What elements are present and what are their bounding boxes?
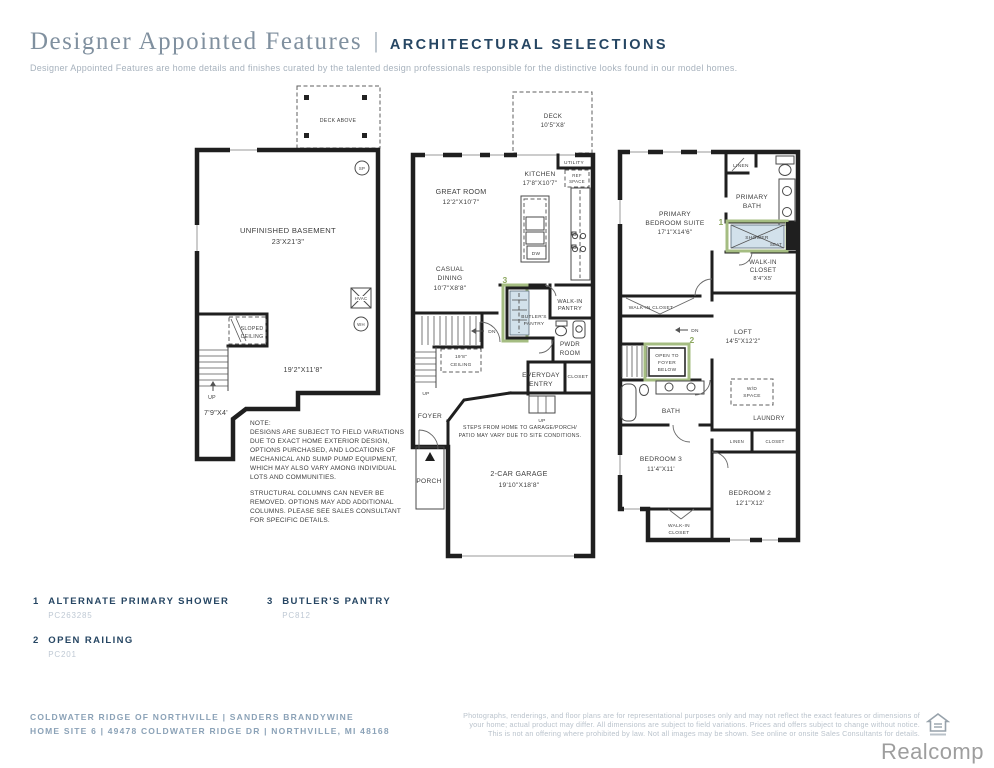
primary-bath-label-2: BATH xyxy=(743,203,761,210)
steps-note-1: STEPS FROM HOME TO GARAGE/PORCH/ xyxy=(463,425,577,431)
basement-room-label: UNFINISHED BASEMENT xyxy=(240,226,336,235)
loft-dim: 14'5"X12'2" xyxy=(726,338,761,345)
note-line: WHICH MAY ALSO VARY AMONG INDIVIDUAL xyxy=(250,465,397,472)
second-floor-plan: LINEN PRIMARY BATH PRIMARY BEDROOM SUITE… xyxy=(616,148,798,543)
entry-closet-label: CLOSET xyxy=(568,374,589,380)
bedroom2-dim: 12'1"X12' xyxy=(736,500,765,507)
legend-code: PC263285 xyxy=(48,611,229,620)
legend-label: ALTERNATE PRIMARY SHOWER xyxy=(48,596,229,607)
casual-dining-dim: 10'7"X8'8" xyxy=(434,285,467,292)
basement-plan: DECK ABOVE UP SLOPED xyxy=(193,86,405,524)
legend-num: 2 xyxy=(33,635,39,659)
deck-dim: 10'5"X8' xyxy=(541,122,566,129)
legend-num: 1 xyxy=(33,596,39,620)
deck-outline: DECK 10'5"X8' xyxy=(513,92,592,153)
loft-label: LOFT xyxy=(734,329,752,336)
note-line: DUE TO EXACT HOME EXTERIOR DESIGN, xyxy=(250,438,389,445)
great-room-label: GREAT ROOM xyxy=(436,188,487,196)
steps-note-2: PATIO MAY VARY DUE TO SITE CONDITIONS. xyxy=(459,433,582,439)
ref-label-1: REF xyxy=(572,173,582,178)
small-wic-label: WALK-IN CLOSET xyxy=(629,305,674,311)
walkin-pantry-label-2: PANTRY xyxy=(558,306,582,312)
open-to-foyer-highlight: OPEN TO FOYER BELOW xyxy=(645,344,689,380)
flyer-page: Designer Appointed Features | ARCHITECTU… xyxy=(0,0,994,768)
legend-item-2: 2 OPEN RAILING PC201 xyxy=(33,635,134,659)
bedroom2-label: BEDROOM 2 xyxy=(729,490,771,497)
linen2-label: LINEN xyxy=(730,439,744,444)
note-line: LOTS AND COMMUNITIES. xyxy=(250,474,336,481)
porch-label: PORCH xyxy=(416,478,441,485)
kitchen-label: KITCHEN xyxy=(524,171,555,178)
legend-label: OPEN RAILING xyxy=(48,635,133,646)
bedroom3-dim: 11'4"X11' xyxy=(647,466,675,473)
up-stairs-label: UP xyxy=(422,391,429,397)
open-foyer-label-2: FOYER xyxy=(658,360,676,366)
foyer-label: FOYER xyxy=(418,413,442,420)
porch: PORCH xyxy=(416,447,444,509)
primary-wic-dim: 8'4"X5' xyxy=(753,276,772,282)
legend-label: BUTLER'S PANTRY xyxy=(282,596,391,607)
realcomp-watermark: Realcomp xyxy=(881,739,984,765)
footer-line-1: COLDWATER RIDGE OF NORTHVILLE | SANDERS … xyxy=(30,711,390,725)
basement-dim2: 19'2"X11'8" xyxy=(284,366,323,374)
note-line: OPTIONS PURCHASED, AND LOCATIONS OF xyxy=(250,447,396,454)
powder-room-label-2: ROOM xyxy=(560,350,580,357)
wd-label-2: SPACE xyxy=(743,393,760,399)
note-line: NOTE: xyxy=(250,420,271,427)
wd-label-1: W/D xyxy=(747,386,757,392)
butlers-pantry-label-2: PANTRY xyxy=(524,321,545,327)
floor-plans-graphic: DECK ABOVE UP SLOPED xyxy=(0,0,994,768)
legend-code: PC812 xyxy=(282,611,391,620)
hvac-label: HVAC xyxy=(355,296,368,301)
garage-label: 2-CAR GARAGE xyxy=(490,470,547,478)
everyday-entry-label-1: EVERYDAY xyxy=(522,372,560,379)
footer-line-2: HOME SITE 6 | 49478 COLDWATER RIDGE DR |… xyxy=(30,725,390,739)
deck-label: DECK xyxy=(544,113,563,120)
butlers-pantry-label-1: BUTLER'S xyxy=(521,314,546,320)
legend-code: PC201 xyxy=(48,650,133,659)
legend-item-3: 3 BUTLER'S PANTRY PC812 xyxy=(267,596,391,620)
sp-label: SP xyxy=(359,166,365,171)
walkin-pantry-label-1: WALK-IN xyxy=(557,299,582,305)
bath-label: BATH xyxy=(662,408,680,415)
primary-wic-label-1: WALK-IN xyxy=(749,259,777,266)
primary-bath-label-1: PRIMARY xyxy=(736,194,768,201)
shower-label: SHOWER xyxy=(745,235,769,241)
suite-dim: 17'1"X14'6" xyxy=(658,229,693,236)
dishwasher-label: DW xyxy=(532,251,541,257)
dn-label: DN xyxy=(488,329,496,335)
footer-disclaimer: Photographs, renderings, and floor plans… xyxy=(450,711,920,739)
note-line: COLUMNS. PLEASE SEE SALES CONSULTANT xyxy=(250,508,401,515)
wh-label: WH xyxy=(357,322,365,327)
note-line: STRUCTURAL COLUMNS CAN NEVER BE xyxy=(250,490,385,497)
note-line: MECHANICAL AND SUMP PUMP EQUIPMENT, xyxy=(250,456,397,463)
deck-above-label: DECK ABOVE xyxy=(320,118,357,124)
basement-dim3: 7'9"X4' xyxy=(204,409,228,417)
everyday-entry-label-2: ENTRY xyxy=(529,381,553,388)
casual-dining-label-1: CASUAL xyxy=(436,266,464,273)
basement-room-dim: 23'X21'3" xyxy=(272,238,305,246)
utility-label: UTILITY xyxy=(564,160,584,166)
deck-above-outline: DECK ABOVE xyxy=(297,86,380,148)
legend-num: 3 xyxy=(267,596,273,620)
ceiling-dim: 19'8" xyxy=(455,354,467,360)
open-foyer-label-3: BELOW xyxy=(658,367,677,373)
suite-label-1: PRIMARY xyxy=(659,211,691,218)
disclaimer-line: Photographs, renderings, and floor plans… xyxy=(450,711,920,720)
great-room-dim: 12'2"X10'7" xyxy=(443,199,480,206)
disclaimer-line: your home; actual product may differ. Al… xyxy=(450,720,920,729)
wic-bottom-label-1: WALK-IN xyxy=(668,523,690,529)
footer-community-info: COLDWATER RIDGE OF NORTHVILLE | SANDERS … xyxy=(30,711,390,738)
seat-label: SEAT xyxy=(770,242,782,247)
garage-dim: 19'10"X18'8" xyxy=(499,482,540,489)
open-foyer-label-1: OPEN TO xyxy=(655,353,679,359)
disclaimer-line: This is not an offering where prohibited… xyxy=(450,729,920,738)
basement-up-label: UP xyxy=(208,395,216,401)
ceiling-label: CEILING xyxy=(450,362,471,368)
marker-1: 1 xyxy=(718,217,723,227)
bedroom3-label: BEDROOM 3 xyxy=(640,456,682,463)
laundry-label: LAUNDRY xyxy=(753,415,785,422)
linen-label: LINEN xyxy=(733,163,749,169)
wic-bottom-label-2: CLOSET xyxy=(669,530,690,536)
casual-dining-label-2: DINING xyxy=(438,275,463,282)
powder-room-label-1: PWDR xyxy=(560,341,580,348)
primary-wic-label-2: CLOSET xyxy=(750,267,777,274)
loft-dn-label: DN xyxy=(691,328,699,334)
note-line: REMOVED. OPTIONS MAY ADD ADDITIONAL xyxy=(250,499,394,506)
note-line: DESIGNS ARE SUBJECT TO FIELD VARIATIONS xyxy=(250,429,405,436)
closet2-label: CLOSET xyxy=(766,439,785,444)
note-line: FOR SPECIFIC DETAILS. xyxy=(250,517,330,524)
sloped-ceiling-label-2: CEILING xyxy=(241,334,264,340)
sloped-ceiling-label-1: SLOPED xyxy=(241,326,264,332)
entry-up-label: UP xyxy=(538,418,545,424)
ref-label-2: SPACE xyxy=(569,179,585,184)
kitchen-dim: 17'8"X10'7" xyxy=(523,180,558,187)
legend-item-1: 1 ALTERNATE PRIMARY SHOWER PC263285 xyxy=(33,596,229,620)
suite-label-2: BEDROOM SUITE xyxy=(645,220,705,227)
basement-note: NOTE: DESIGNS ARE SUBJECT TO FIELD VARIA… xyxy=(250,420,405,524)
first-floor-plan: DECK 10'5"X8' xyxy=(413,92,593,560)
